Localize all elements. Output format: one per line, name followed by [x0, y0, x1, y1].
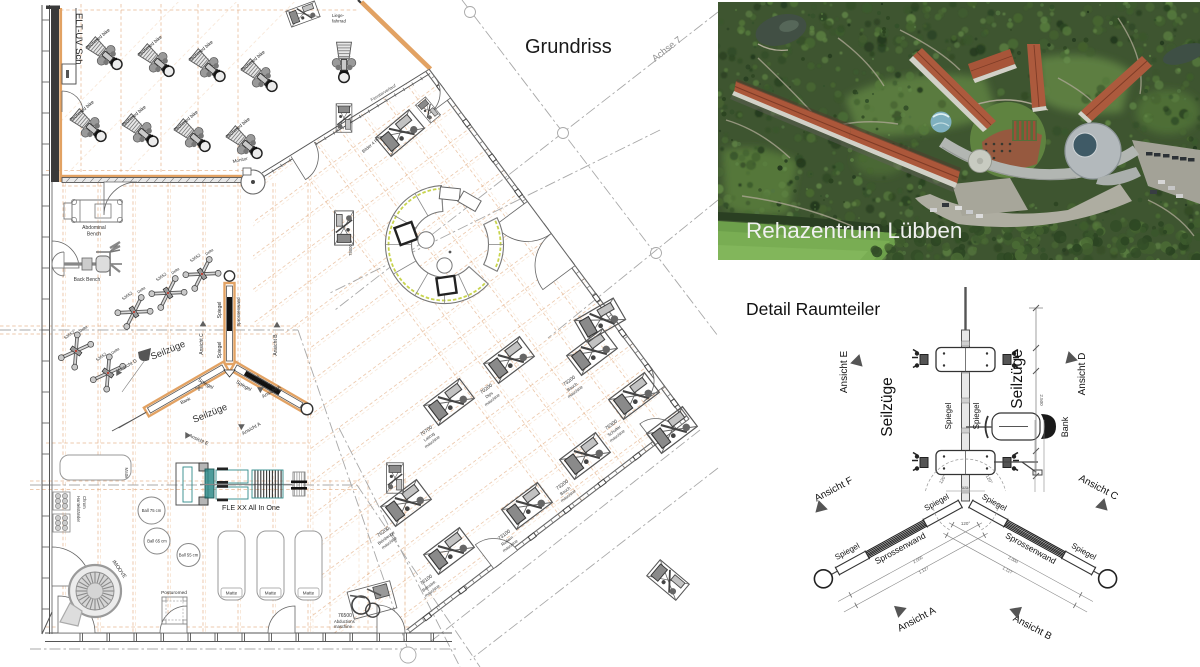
svg-text:Abdominal: Abdominal — [82, 225, 106, 231]
svg-text:Matte: Matte — [303, 591, 315, 596]
svg-text:Ansicht B: Ansicht B — [273, 334, 279, 356]
svg-text:Grundriss: Grundriss — [525, 36, 612, 58]
svg-text:Rehazentrum Lübben: Rehazentrum Lübben — [746, 218, 962, 243]
svg-text:Matte: Matte — [124, 468, 129, 480]
svg-text:Chrom: Chrom — [82, 496, 87, 509]
svg-text:Back Bench: Back Bench — [74, 277, 101, 283]
svg-text:Detail Raumteiler: Detail Raumteiler — [746, 299, 880, 319]
svg-text:Spiegel: Spiegel — [217, 342, 223, 359]
svg-text:Spiegel: Spiegel — [972, 402, 981, 429]
svg-text:maschine: maschine — [334, 624, 353, 629]
svg-text:Ball 75 cm: Ball 75 cm — [142, 508, 162, 513]
svg-text:Bench: Bench — [87, 232, 101, 238]
svg-text:120°: 120° — [961, 521, 971, 526]
svg-text:Liege-: Liege- — [332, 13, 345, 18]
svg-text:FLE XX All In One: FLE XX All In One — [222, 503, 280, 512]
svg-text:2.500: 2.500 — [1039, 394, 1044, 406]
svg-text:Ansicht D: Ansicht D — [1077, 353, 1088, 396]
svg-text:Ansicht E: Ansicht E — [839, 351, 850, 394]
svg-text:Posturomed: Posturomed — [161, 590, 187, 596]
svg-text:Hantelständer: Hantelständer — [76, 496, 81, 523]
svg-text:Seilzüge: Seilzüge — [1009, 349, 1026, 408]
svg-text:Sprossenwand: Sprossenwand — [236, 297, 241, 327]
svg-text:ELT-UV Sch: ELT-UV Sch — [73, 13, 84, 65]
svg-text:Ball 65 cm: Ball 65 cm — [147, 539, 167, 544]
svg-text:Bank: Bank — [1060, 416, 1070, 437]
svg-text:Seilzüge: Seilzüge — [879, 377, 896, 436]
svg-text:fahrrad: fahrrad — [332, 19, 346, 24]
svg-text:Spiegel: Spiegel — [217, 302, 223, 319]
svg-text:Ball 55 cm: Ball 55 cm — [179, 553, 199, 558]
svg-text:Matte: Matte — [265, 591, 277, 596]
svg-text:Spiegel: Spiegel — [944, 402, 953, 429]
svg-text:Ansicht C: Ansicht C — [199, 333, 205, 355]
svg-text:373: 373 — [962, 486, 968, 490]
svg-text:Matte: Matte — [226, 591, 238, 596]
svg-text:75000: 75000 — [348, 244, 353, 256]
